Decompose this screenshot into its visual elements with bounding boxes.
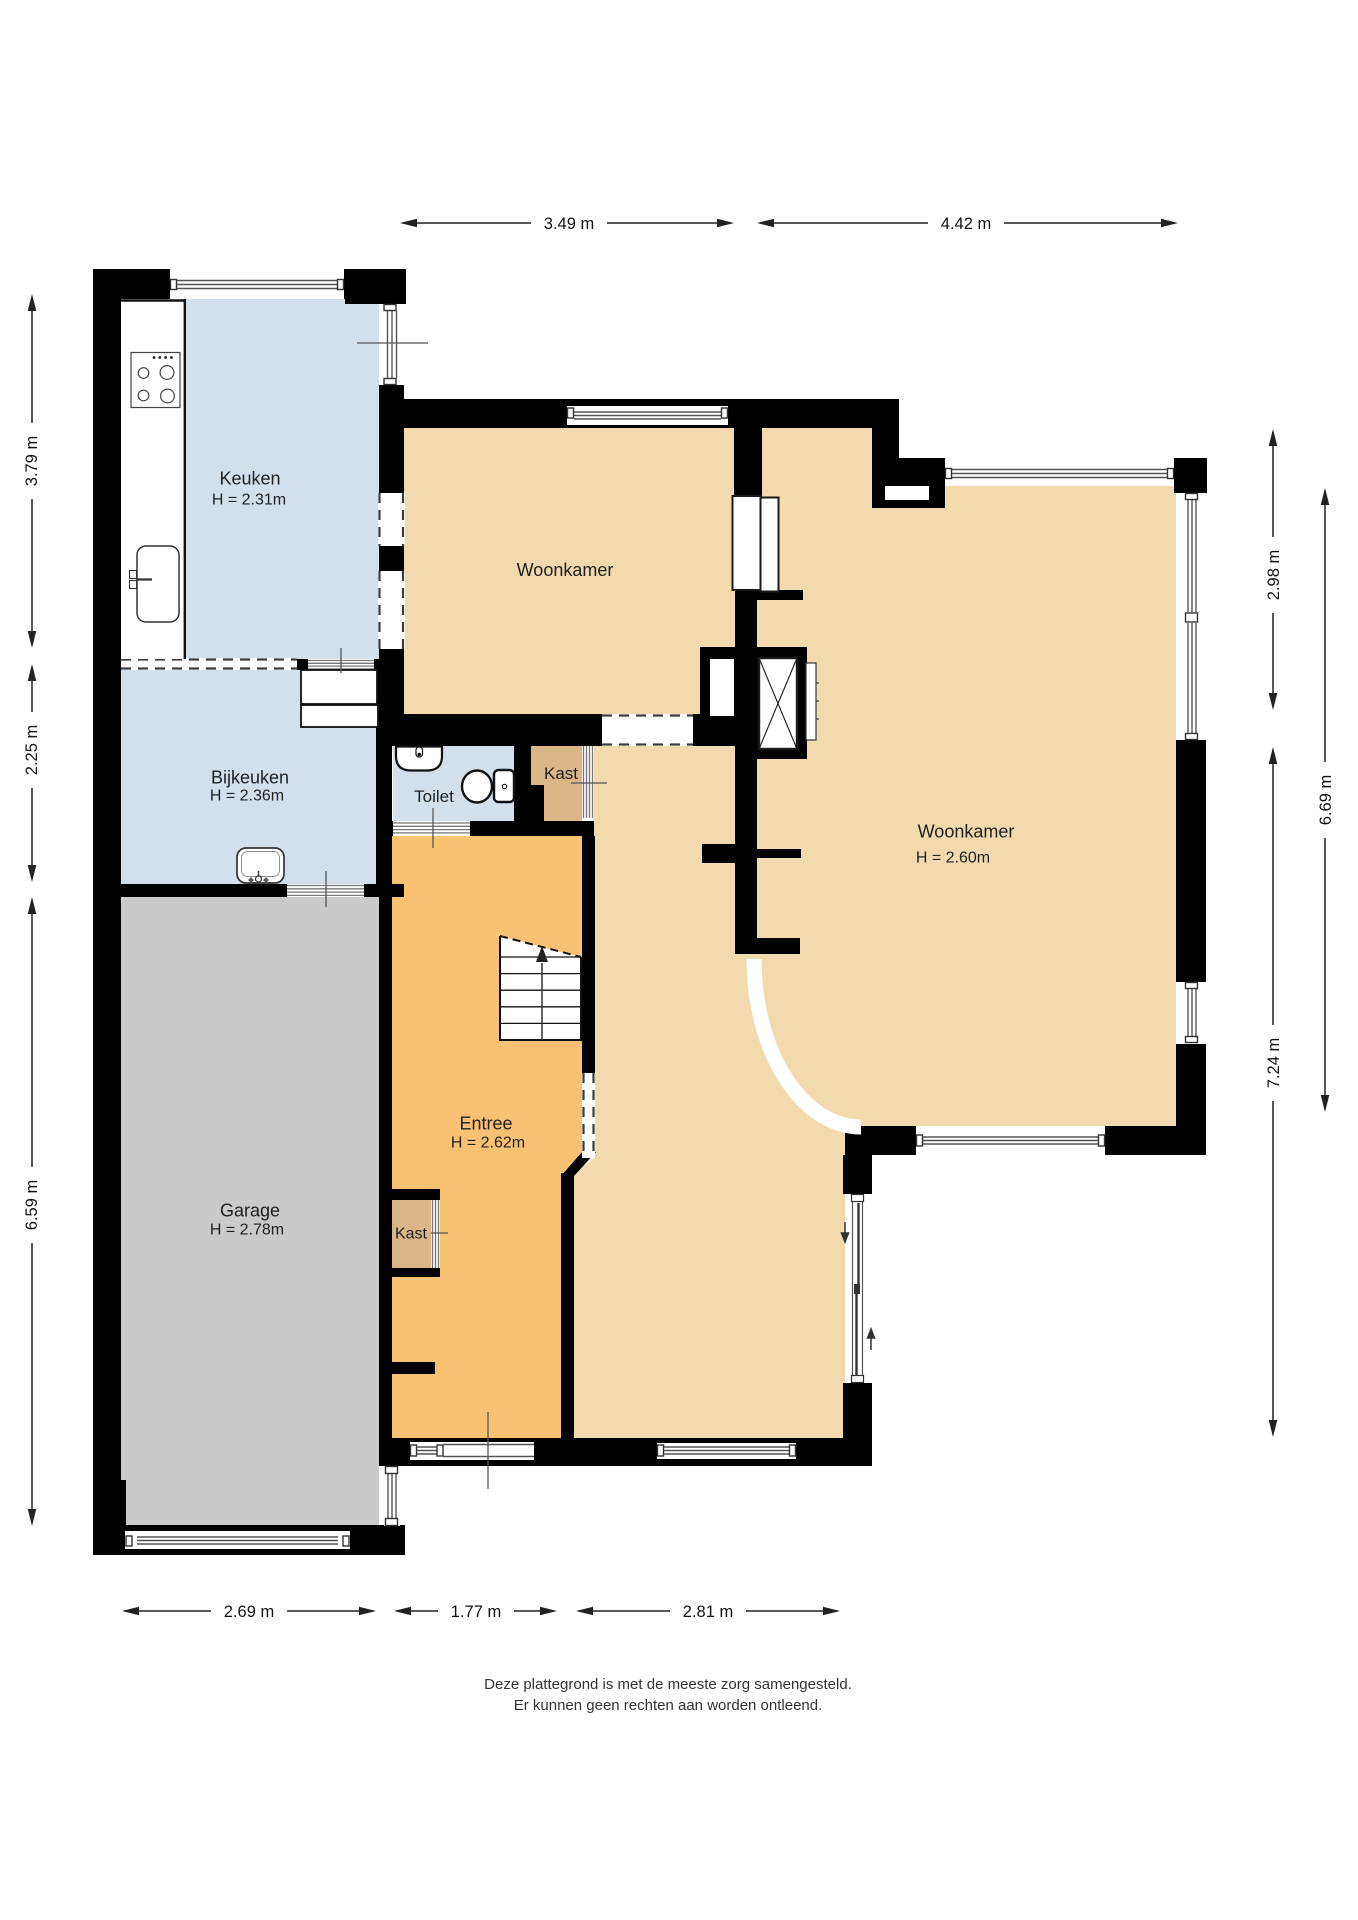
svg-text:H = 2.60m: H = 2.60m bbox=[916, 850, 990, 867]
svg-text:3.49 m: 3.49 m bbox=[544, 215, 594, 233]
svg-text:2.25 m: 2.25 m bbox=[23, 725, 41, 775]
svg-text:Bijkeuken: Bijkeuken bbox=[211, 768, 289, 788]
svg-text:3.79 m: 3.79 m bbox=[23, 436, 41, 486]
svg-text:6.59 m: 6.59 m bbox=[23, 1180, 41, 1230]
svg-text:2.69 m: 2.69 m bbox=[224, 1603, 274, 1621]
svg-text:6.69 m: 6.69 m bbox=[1317, 775, 1335, 825]
svg-text:2.98 m: 2.98 m bbox=[1265, 550, 1283, 600]
svg-text:Deze plattegrond is met de mee: Deze plattegrond is met de meeste zorg s… bbox=[484, 1676, 852, 1693]
svg-text:H = 2.78m: H = 2.78m bbox=[210, 1222, 284, 1239]
svg-text:H = 2.31m: H = 2.31m bbox=[212, 492, 286, 509]
svg-text:Woonkamer: Woonkamer bbox=[918, 822, 1015, 842]
svg-text:Kast: Kast bbox=[395, 1226, 428, 1243]
svg-text:4.42 m: 4.42 m bbox=[941, 215, 991, 233]
svg-text:H = 2.62m: H = 2.62m bbox=[451, 1135, 525, 1152]
svg-text:Garage: Garage bbox=[220, 1201, 280, 1221]
svg-text:Toilet: Toilet bbox=[414, 787, 454, 806]
svg-text:7.24 m: 7.24 m bbox=[1265, 1038, 1283, 1088]
svg-text:Woonkamer: Woonkamer bbox=[517, 560, 614, 580]
svg-text:Er kunnen geen rechten aan wor: Er kunnen geen rechten aan worden ontlee… bbox=[514, 1697, 823, 1714]
svg-text:2.81 m: 2.81 m bbox=[683, 1603, 733, 1621]
svg-text:Entree: Entree bbox=[459, 1114, 512, 1134]
svg-text:Keuken: Keuken bbox=[219, 469, 280, 489]
svg-text:Kast: Kast bbox=[544, 764, 578, 783]
svg-text:H = 2.36m: H = 2.36m bbox=[210, 788, 284, 805]
svg-text:1.77 m: 1.77 m bbox=[451, 1603, 501, 1621]
